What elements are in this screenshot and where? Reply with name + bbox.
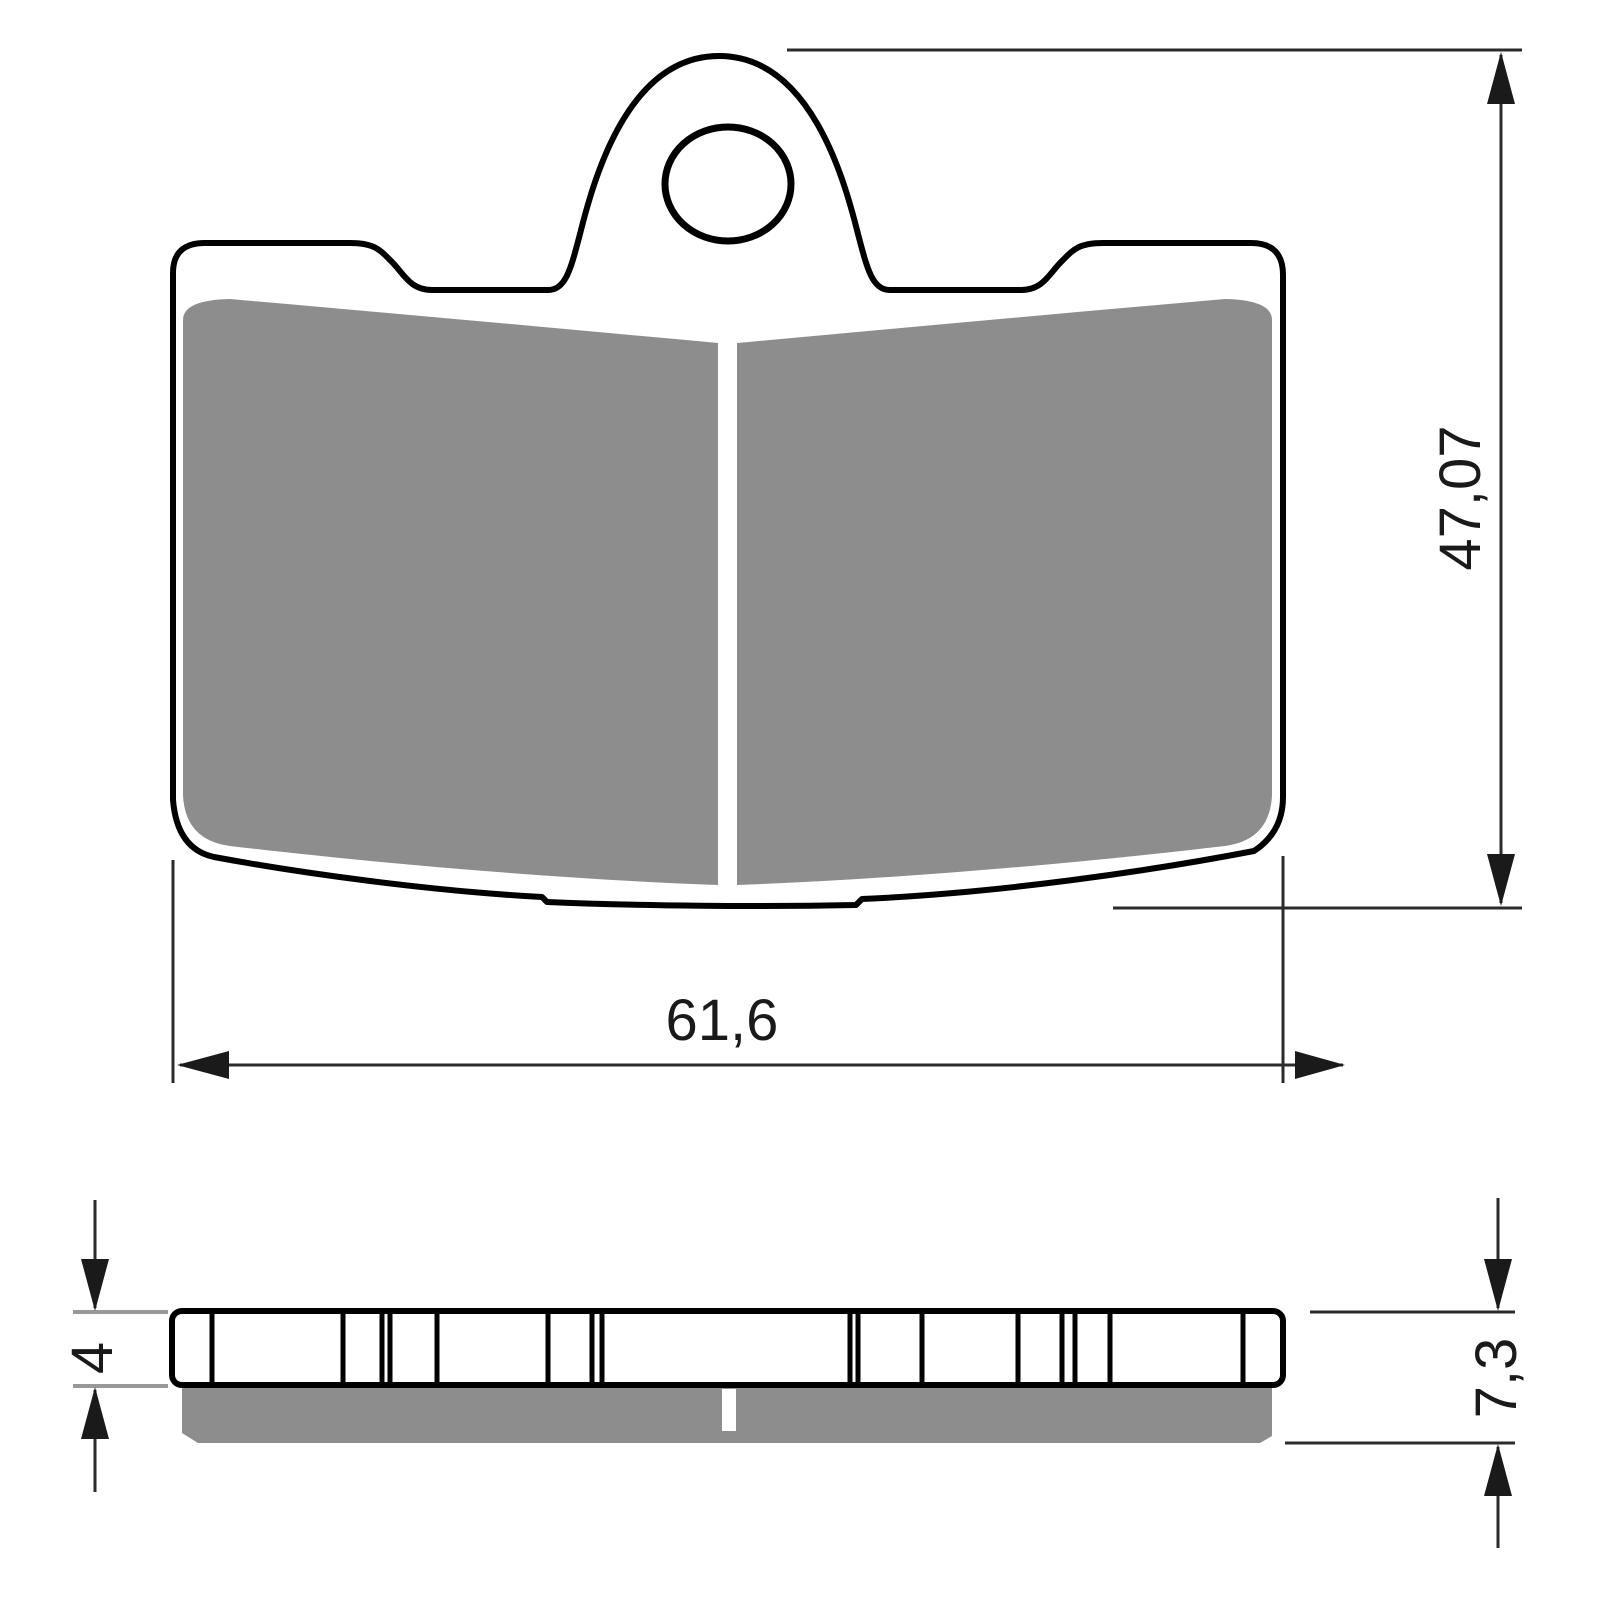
- side-friction-groove-notch: [722, 1389, 736, 1431]
- width-dimension-label: 61,6: [666, 988, 779, 1053]
- mounting-tab-hole: [665, 127, 791, 241]
- height-arrow-bottom: [1487, 854, 1515, 906]
- brake-pad-top-view: [173, 56, 1283, 906]
- total-thickness-arrow-bottom: [1484, 1444, 1512, 1496]
- width-arrow-right: [1295, 1051, 1345, 1079]
- plate-thickness-arrow-bottom: [81, 1387, 109, 1439]
- friction-pad-left-half: [183, 299, 718, 885]
- width-arrow-left: [177, 1051, 229, 1079]
- total-thickness-arrow-top: [1484, 1259, 1512, 1311]
- height-arrow-top: [1487, 52, 1515, 104]
- height-dimension-label: 47,07: [1428, 425, 1493, 570]
- plate-thickness-arrow-top: [81, 1259, 109, 1311]
- side-backplate: [172, 1311, 1283, 1385]
- brake-pad-side-view: [172, 1311, 1283, 1443]
- brake-pad-technical-drawing: 61,6 47,07: [0, 0, 1600, 1600]
- friction-pad-right-half: [737, 299, 1272, 885]
- total-thickness-label: 7,3: [1464, 1338, 1529, 1419]
- plate-thickness-label: 4: [60, 1342, 125, 1374]
